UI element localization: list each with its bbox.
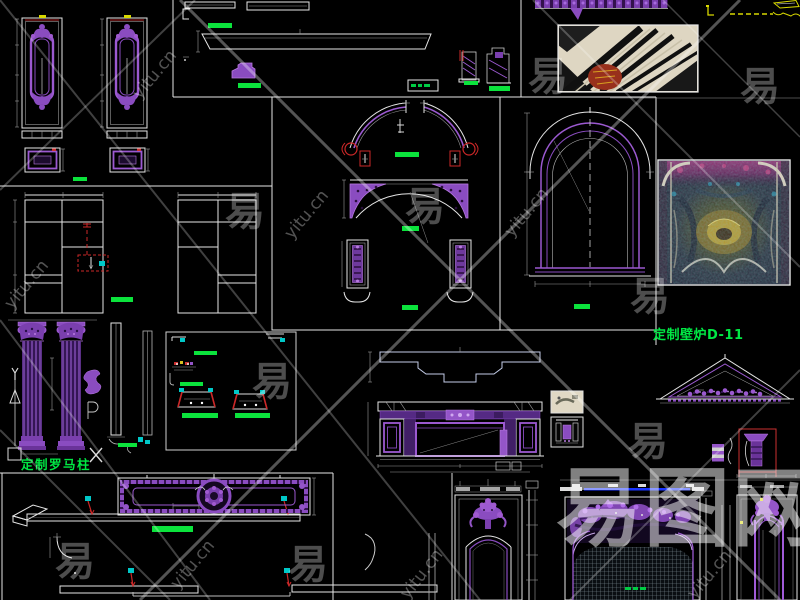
cad-canvas: 定制壁炉D-11 定制罗马柱 yitu.cn yitu.cn yitu.cn y… — [0, 0, 800, 600]
dimension-bar — [402, 226, 419, 231]
hardware-detail-box — [160, 328, 305, 456]
roman-column-label: 定制罗马柱 — [21, 454, 91, 473]
dimension-bar — [395, 152, 419, 157]
ornament-frieze-band — [535, 0, 668, 8]
panel-elevation-3 — [737, 485, 797, 600]
dimension-bar — [152, 526, 193, 532]
panel-elevation-1 — [455, 479, 522, 600]
dimension-bar — [208, 23, 232, 28]
dimension-bar — [464, 81, 478, 85]
fireplace-label: 定制壁炉D-11 — [653, 324, 744, 343]
spandrel-arch-drawing — [342, 180, 468, 243]
door-panel-drawings — [0, 0, 175, 185]
dimension-bar — [574, 304, 590, 309]
pilaster-section-profiles — [459, 48, 511, 83]
cabinet-elevation-drawings — [0, 185, 270, 335]
dimension-bar — [73, 177, 87, 181]
blue-dimension-line — [584, 488, 690, 491]
shelf-and-frieze-drawings — [0, 460, 460, 600]
crown-profile-section — [232, 63, 255, 78]
mantel-plan-profile — [380, 352, 540, 382]
detail-photo-small — [551, 391, 583, 413]
dimension-bar — [182, 413, 218, 418]
frieze-and-render-photo — [505, 0, 800, 100]
dimension-bar — [238, 83, 261, 88]
arched-window-drawing — [505, 95, 660, 310]
dimension-bar — [180, 382, 203, 386]
arch-detail-drawings — [272, 91, 500, 330]
dimension-bar — [111, 297, 133, 302]
molding-strip-drawings — [105, 318, 163, 458]
dimension-bar — [489, 86, 510, 91]
door-panel-elevations — [440, 455, 800, 600]
panel-elevation-2-mesh — [565, 497, 700, 600]
capital-ornament-piece — [84, 370, 101, 394]
dimension-bar — [194, 351, 217, 355]
dimension-bar — [118, 443, 137, 447]
marble-fireplace-photo — [650, 150, 800, 345]
dimension-bar — [402, 305, 418, 310]
dimension-bar — [235, 413, 270, 418]
